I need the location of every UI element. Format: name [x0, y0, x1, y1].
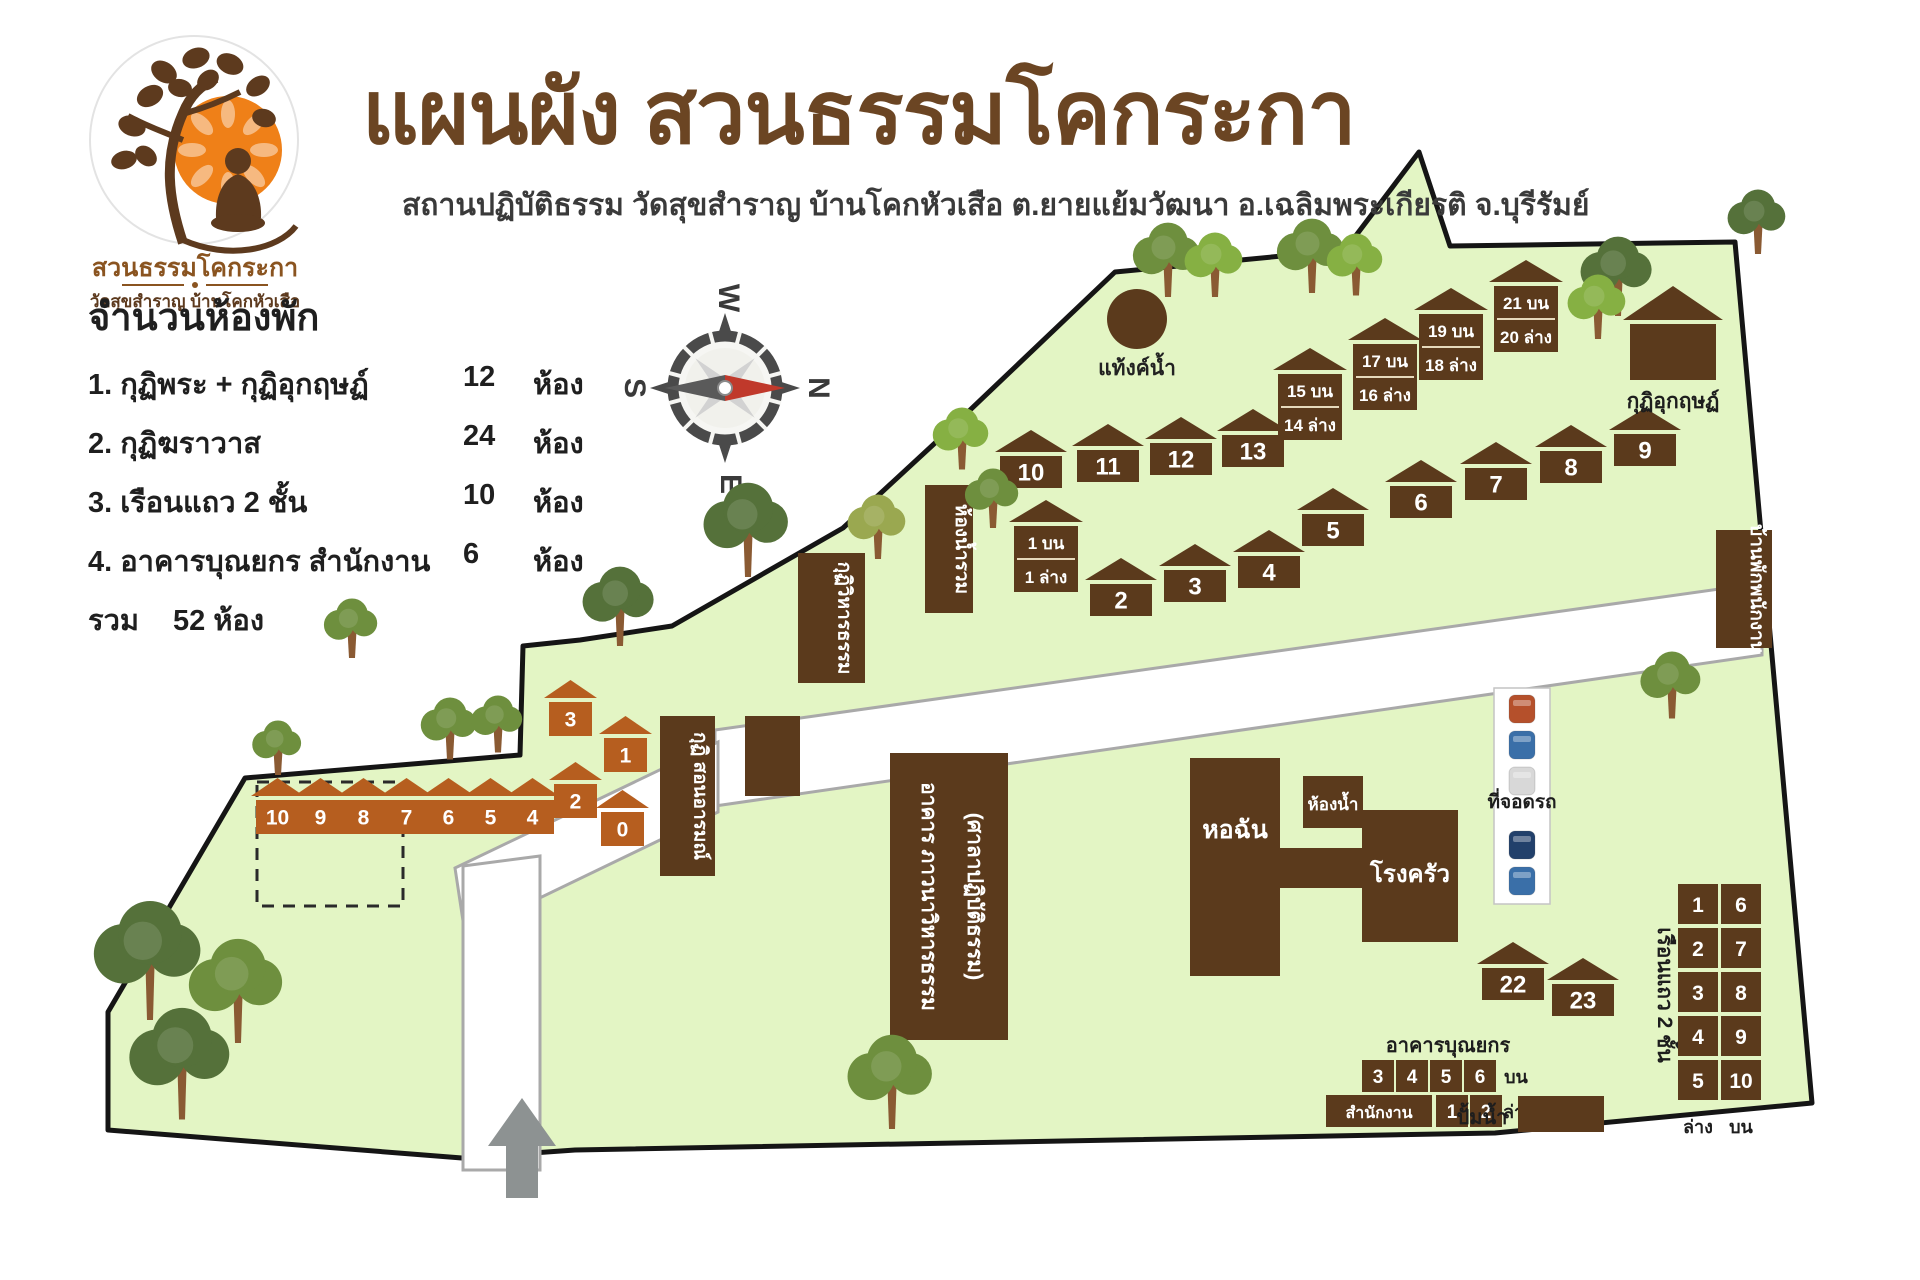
svg-text:อาคาร ภาวนาวิหารธรรม: อาคาร ภาวนาวิหารธรรม — [917, 782, 940, 1011]
svg-text:1 ล่าง: 1 ล่าง — [1025, 568, 1067, 587]
svg-text:9: 9 — [1735, 1026, 1747, 1049]
svg-text:ห้องน้ำ: ห้องน้ำ — [1308, 791, 1359, 814]
legend-item: 2. กุฏิฆราวาส 24 ห้อง — [88, 420, 648, 466]
svg-text:18 ล่าง: 18 ล่าง — [1425, 356, 1477, 375]
svg-text:กุฏิอุกฤษฏ์: กุฏิอุกฤษฏ์ — [1627, 389, 1720, 415]
legend-item: 4. อาคารบุณยกร สำนักงาน 6 ห้อง — [88, 538, 648, 584]
svg-text:อาคารบุณยกร: อาคารบุณยกร — [1386, 1035, 1511, 1058]
svg-text:17 บน: 17 บน — [1362, 352, 1408, 371]
tree-icon — [421, 698, 477, 760]
svg-text:สำนักงาน: สำนักงาน — [1345, 1104, 1412, 1122]
svg-text:5: 5 — [1441, 1067, 1452, 1088]
svg-text:เรือนแถว 2 ชั้น: เรือนแถว 2 ชั้น — [1653, 927, 1681, 1063]
svg-text:2: 2 — [1114, 588, 1127, 615]
svg-text:22: 22 — [1500, 972, 1527, 999]
room-count-legend: จำนวนห้องพัก 1. กุฏิพระ + กุฏิอุกฤษฏ์ 12… — [88, 286, 648, 643]
svg-text:บน: บน — [1729, 1117, 1753, 1137]
svg-text:ปั้มน้ำ: ปั้มน้ำ — [1457, 1102, 1508, 1129]
svg-text:3: 3 — [1373, 1067, 1384, 1088]
svg-text:10: 10 — [1729, 1070, 1752, 1093]
svg-text:(ศาลาปฏิบัติธรรม): (ศาลาปฏิบัติธรรม) — [963, 813, 986, 980]
svg-text:1: 1 — [1692, 894, 1704, 917]
svg-text:4: 4 — [1262, 560, 1276, 587]
svg-text:2: 2 — [570, 791, 582, 814]
svg-text:15 บน: 15 บน — [1287, 382, 1333, 401]
svg-text:2: 2 — [1692, 938, 1704, 961]
svg-text:7: 7 — [1489, 472, 1502, 499]
svg-text:กุฏิ สอนอารมณ์: กุฏิ สอนอารมณ์ — [689, 732, 712, 860]
svg-text:6: 6 — [1475, 1067, 1486, 1088]
building-กุฏิ สอนอารมณ์: กุฏิ สอนอารมณ์ — [660, 716, 715, 876]
legend-item: 3. เรือนแถว 2 ชั้น 10 ห้อง — [88, 479, 648, 525]
tree-icon — [704, 483, 788, 577]
svg-text:5: 5 — [485, 807, 497, 830]
svg-text:8: 8 — [1735, 982, 1747, 1005]
page-title: แผนผัง สวนธรรมโคกระกา — [362, 42, 1356, 182]
svg-text:7: 7 — [401, 807, 413, 830]
svg-text:10: 10 — [266, 807, 289, 830]
svg-text:23: 23 — [1570, 988, 1597, 1015]
building-practice-hall: อาคาร ภาวนาวิหารธรรม(ศาลาปฏิบัติธรรม) — [890, 753, 1008, 1040]
svg-text:บ้านพักพนักงาน: บ้านพักพนักงาน — [1746, 524, 1768, 654]
svg-text:หอฉัน: หอฉัน — [1202, 816, 1268, 844]
svg-text:21 บน: 21 บน — [1503, 294, 1549, 313]
svg-text:6: 6 — [1735, 894, 1747, 917]
svg-text:10: 10 — [1018, 460, 1045, 487]
svg-text:9: 9 — [315, 807, 327, 830]
svg-text:4: 4 — [1692, 1026, 1704, 1049]
svg-text:12: 12 — [1168, 447, 1195, 474]
compass-icon: W N E S — [618, 284, 835, 494]
site-map-page: { "header": { "title": "แผนผัง สวนธรรมโค… — [0, 0, 1920, 1280]
svg-text:13: 13 — [1240, 439, 1267, 466]
svg-text:16 ล่าง: 16 ล่าง — [1359, 386, 1411, 405]
page-subtitle: สถานปฏิบัติธรรม วัดสุขสำราญ บ้านโคกหัวเส… — [402, 182, 1589, 229]
svg-text:11: 11 — [1095, 454, 1120, 481]
tree-icon — [252, 720, 301, 775]
svg-text:9: 9 — [1638, 438, 1651, 465]
legend-total: รวม 52 ห้อง — [88, 597, 648, 643]
svg-text:3: 3 — [565, 709, 577, 732]
logo — [88, 28, 304, 263]
svg-text:แท้งค์น้ำ: แท้งค์น้ำ — [1098, 352, 1176, 380]
tree-icon — [471, 695, 522, 752]
building-กุฏิวิหารธรรม: กุฏิวิหารธรรม — [798, 553, 865, 683]
building-บ้านพักพนักงาน: บ้านพักพนักงาน — [1716, 524, 1772, 654]
legend-title: จำนวนห้องพัก — [88, 286, 648, 347]
svg-text:6: 6 — [443, 807, 455, 830]
svg-text:บน: บน — [1504, 1067, 1528, 1087]
svg-text:5: 5 — [1692, 1070, 1704, 1093]
svg-text:7: 7 — [1735, 938, 1747, 961]
compass-w: W — [712, 284, 745, 313]
svg-text:8: 8 — [1564, 455, 1577, 482]
svg-text:ล่าง: ล่าง — [1683, 1117, 1713, 1137]
parking-area: ที่จอดรถ — [1487, 688, 1556, 904]
svg-text:6: 6 — [1414, 490, 1427, 517]
svg-text:3: 3 — [1692, 982, 1704, 1005]
svg-text:1 บน: 1 บน — [1028, 534, 1065, 553]
svg-text:5: 5 — [1326, 518, 1339, 545]
svg-text:โรงครัว: โรงครัว — [1369, 859, 1450, 888]
svg-text:4: 4 — [1407, 1067, 1418, 1088]
svg-text:กุฏิวิหารธรรม: กุฏิวิหารธรรม — [833, 562, 855, 675]
svg-text:14 ล่าง: 14 ล่าง — [1284, 416, 1336, 435]
svg-text:1: 1 — [620, 745, 632, 768]
svg-text:0: 0 — [617, 819, 629, 842]
svg-text:20 ล่าง: 20 ล่าง — [1500, 328, 1552, 347]
svg-text:8: 8 — [358, 807, 370, 830]
svg-text:ที่จอดรถ: ที่จอดรถ — [1487, 788, 1556, 813]
logo-emblem-icon — [88, 28, 304, 258]
building-annex — [745, 716, 800, 796]
svg-text:19 บน: 19 บน — [1428, 322, 1474, 341]
compass-n: N — [802, 377, 835, 399]
legend-item: 1. กุฏิพระ + กุฏิอุกฤษฏ์ 12 ห้อง — [88, 361, 648, 407]
svg-text:4: 4 — [527, 807, 539, 830]
svg-text:3: 3 — [1188, 574, 1201, 601]
